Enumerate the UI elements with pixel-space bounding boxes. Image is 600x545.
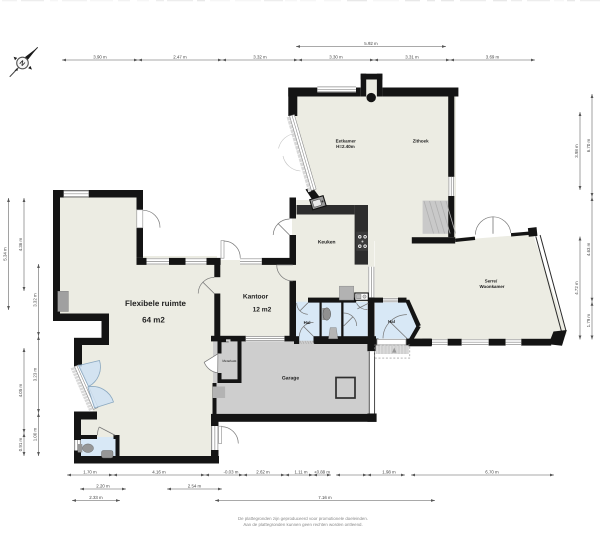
svg-text:4.05 m: 4.05 m xyxy=(18,383,23,397)
svg-text:4.16 m: 4.16 m xyxy=(152,469,166,474)
svg-text:3.32 m: 3.32 m xyxy=(33,293,38,307)
svg-text:6.70 m: 6.70 m xyxy=(485,469,499,474)
svg-text:2.20 m: 2.20 m xyxy=(96,483,110,488)
svg-text:Hal: Hal xyxy=(304,320,311,325)
svg-text:2.54 m: 2.54 m xyxy=(188,483,202,488)
svg-text:4.72 m: 4.72 m xyxy=(574,281,579,295)
svg-text:0.91 m: 0.91 m xyxy=(18,437,23,451)
svg-text:+0.88 m: +0.88 m xyxy=(314,469,330,474)
svg-text:Eetkamer: Eetkamer xyxy=(336,138,357,143)
svg-text:Woonkamer: Woonkamer xyxy=(479,284,504,289)
svg-text:5.34 m: 5.34 m xyxy=(3,247,8,261)
svg-text:1.70 m: 1.70 m xyxy=(83,469,97,474)
svg-text:Hal: Hal xyxy=(388,319,395,324)
svg-text:Meterkast: Meterkast xyxy=(222,359,236,363)
svg-text:2.47 m: 2.47 m xyxy=(173,54,187,59)
svg-text:-0.03 m: -0.03 m xyxy=(224,469,239,474)
svg-text:2.62 m: 2.62 m xyxy=(256,469,270,474)
svg-text:4.36 m: 4.36 m xyxy=(18,237,23,251)
svg-text:3.98 m: 3.98 m xyxy=(574,144,579,158)
svg-text:3.90 m: 3.90 m xyxy=(93,54,107,59)
svg-text:Kantoor: Kantoor xyxy=(243,294,269,301)
svg-text:Aan de plattegronden kunnen ge: Aan de plattegronden kunnen geen rechten… xyxy=(243,522,362,527)
svg-text:3.31 m: 3.31 m xyxy=(405,54,419,59)
svg-text:3.32 m: 3.32 m xyxy=(253,54,267,59)
svg-text:1.00 m: 1.00 m xyxy=(33,427,38,441)
svg-text:4.63 m: 4.63 m xyxy=(586,242,591,256)
svg-text:3.69 m: 3.69 m xyxy=(486,54,500,59)
svg-text:H=2.40m: H=2.40m xyxy=(336,144,355,149)
svg-text:12 m2: 12 m2 xyxy=(253,307,272,314)
svg-text:1.79 m: 1.79 m xyxy=(586,314,591,328)
svg-text:1.11 m: 1.11 m xyxy=(294,469,307,474)
svg-text:Flexibele ruimte: Flexibele ruimte xyxy=(125,299,186,308)
svg-text:Serre/: Serre/ xyxy=(485,279,498,284)
svg-text:2.33 m: 2.33 m xyxy=(89,495,103,500)
svg-text:Zithoek: Zithoek xyxy=(413,138,429,143)
svg-text:1.98 m: 1.98 m xyxy=(382,469,396,474)
svg-text:3.30 m: 3.30 m xyxy=(329,54,343,59)
svg-text:5.92 m: 5.92 m xyxy=(364,41,378,46)
svg-text:7.16 m: 7.16 m xyxy=(318,495,332,500)
svg-text:Garage: Garage xyxy=(282,376,299,382)
svg-text:De plattegronden zijn geproduc: De plattegronden zijn geproduceerd voor … xyxy=(238,516,368,521)
svg-text:Keuken: Keuken xyxy=(318,239,336,245)
svg-text:6.70 m: 6.70 m xyxy=(586,138,591,152)
svg-text:64 m2: 64 m2 xyxy=(142,316,165,325)
svg-text:3.23 m: 3.23 m xyxy=(33,367,38,381)
